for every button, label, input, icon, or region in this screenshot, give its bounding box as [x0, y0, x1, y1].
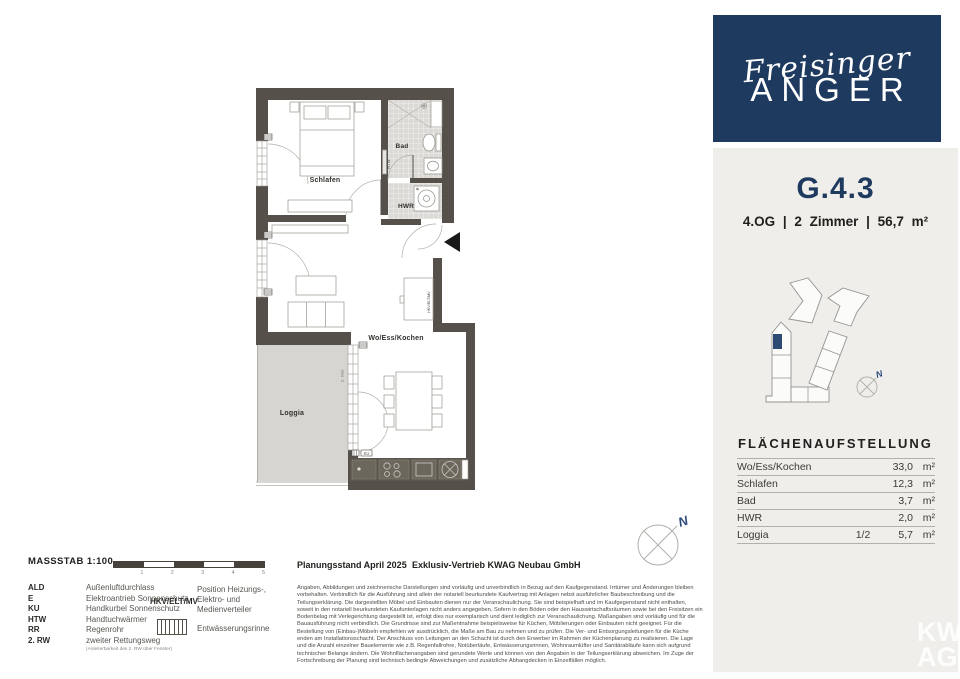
siteplan-compass: N — [857, 368, 884, 397]
pillow — [328, 106, 350, 119]
room-label-loggia: Loggia — [280, 410, 304, 417]
hkv-label: HKV/ELT/MV — [427, 291, 431, 313]
planning-status: Planungsstand April 2025 — [297, 560, 407, 570]
brand-logo: Freisinger ANGER — [713, 15, 941, 142]
hkv-definition: Position Heizungs-, Elektro- und Medienv… — [197, 585, 287, 615]
chair — [432, 395, 442, 408]
chair — [384, 376, 394, 389]
room-label-living: Wo/Ess/Kochen — [368, 335, 423, 342]
scale-bar — [113, 561, 265, 568]
table-row: Wo/Ess/Kochen33,0m² — [737, 458, 935, 476]
site-building — [809, 331, 847, 390]
pillow — [304, 106, 326, 119]
washbasin — [424, 158, 442, 174]
legend-row-note: (Anleiterbarkeit des 2. RW über Fenster) — [28, 647, 188, 653]
nightstand-left — [290, 102, 299, 112]
entry-arrow-icon — [444, 232, 460, 252]
sales-contact: Exklusiv-Vertrieb KWAG Neubau GmbH — [412, 560, 581, 570]
nightstand-right — [355, 102, 364, 112]
legend-row: ALDAußenluftdurchlass — [28, 583, 188, 594]
wc-bowl — [423, 134, 435, 151]
legend-row: 2. RWzweiter Rettungsweg — [28, 636, 188, 647]
north-letter: N — [676, 512, 690, 529]
lowboard — [272, 225, 348, 233]
area-table-title: FLÄCHENAUFSTELLUNG — [713, 436, 958, 451]
unit-details: 4.OG | 2 Zimmer | 56,7 m² — [713, 214, 958, 229]
table-row: Bad3,7m² — [737, 493, 935, 510]
floor-plan: KU Schlafen Bad HWR Wo/Ess/Kochen Loggia… — [248, 78, 482, 502]
site-building — [828, 288, 869, 326]
site-building — [791, 387, 829, 402]
drainage-channel-icon — [157, 619, 187, 635]
chair — [384, 395, 394, 408]
room-label-hwr: HWR — [398, 203, 414, 210]
highlighted-unit — [773, 334, 782, 349]
wc-tank — [436, 134, 441, 151]
drainage-channel-label: Entwässerungsrinne — [197, 624, 269, 633]
kitchen: KU — [350, 450, 468, 481]
room-label-schlafen: Schlafen — [310, 177, 341, 184]
table-row: Loggia1/25,7m² — [737, 527, 935, 544]
sofa — [288, 302, 344, 327]
disclaimer-text: Angaben, Abbildungen und zeichnerische D… — [297, 585, 703, 665]
site-plan: N — [750, 270, 945, 435]
floor-plan-drawing: KU Schlafen Bad HWR Wo/Ess/Kochen Loggia… — [248, 78, 482, 502]
info-panel: G.4.3 4.OG | 2 Zimmer | 56,7 m² N FLÄCHE… — [713, 148, 958, 672]
chair — [432, 376, 442, 389]
stove — [379, 460, 409, 479]
site-building — [789, 278, 822, 323]
htw-label: HTW — [386, 159, 391, 169]
area-table: Wo/Ess/Kochen33,0m² Schlafen12,3m² Bad3,… — [737, 458, 935, 544]
scale-label: MASSSTAB 1:100 — [28, 556, 113, 567]
table-row: HWR2,0m² — [737, 510, 935, 527]
hkv-term: HKV/ELT/MV — [150, 597, 198, 606]
dining-table — [396, 372, 432, 430]
chair — [432, 414, 442, 427]
dresser — [288, 200, 352, 212]
kwag-watermark: KW AG — [917, 620, 958, 670]
abbreviation-legend: ALDAußenluftdurchlass EElektroantrieb So… — [28, 583, 188, 652]
bath-niche — [431, 101, 442, 127]
table-row: Schlafen12,3m² — [737, 476, 935, 493]
ku-label: KU — [364, 451, 370, 456]
scale-ticks: 1 2 3 4 5 — [113, 570, 265, 576]
rw2-label: 2. RW — [340, 369, 345, 382]
north-compass: N — [628, 505, 702, 579]
unit-id: G.4.3 — [713, 172, 958, 206]
room-label-bad: Bad — [396, 143, 409, 150]
chair — [384, 414, 394, 427]
coffee-table — [296, 276, 336, 295]
